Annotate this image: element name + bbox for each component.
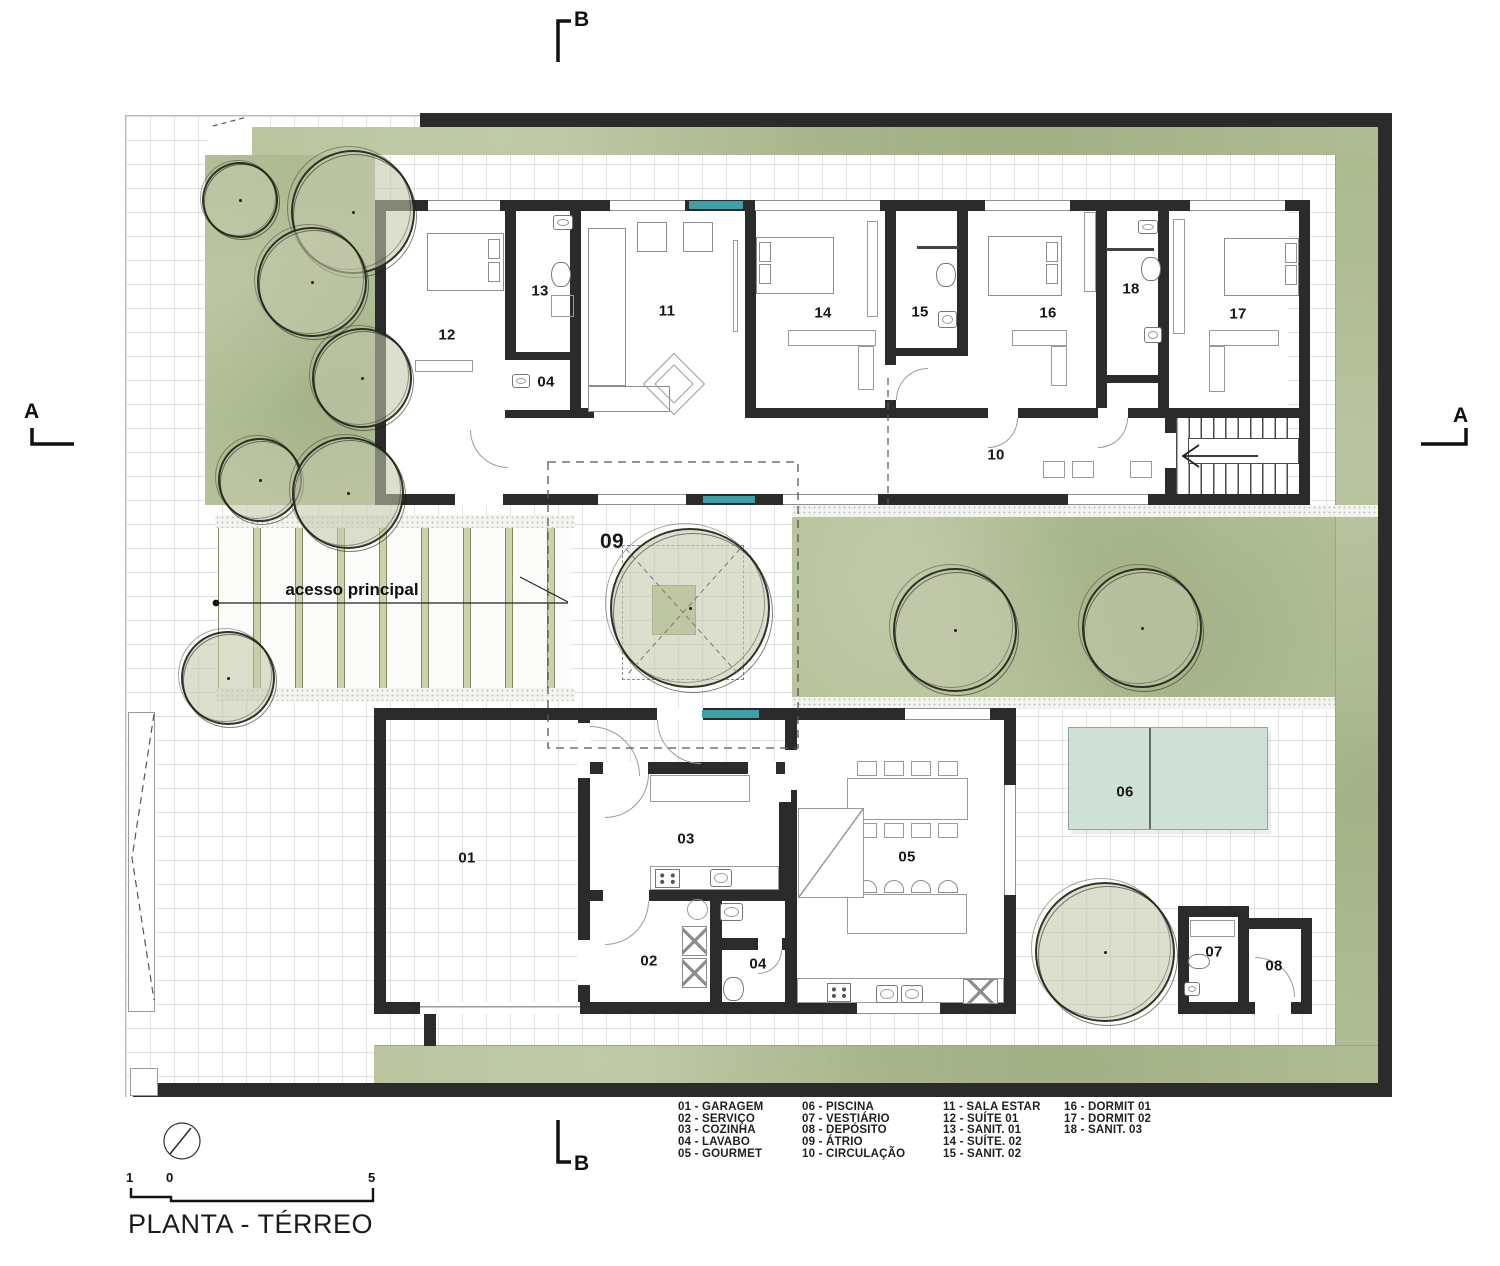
wall bbox=[505, 200, 516, 360]
chair bbox=[938, 761, 958, 776]
door-opening bbox=[758, 938, 782, 950]
wall bbox=[1178, 1002, 1249, 1014]
section-label-a-left: A bbox=[24, 400, 39, 424]
door-opening bbox=[885, 365, 896, 400]
pool bbox=[1068, 727, 1268, 830]
pillow bbox=[759, 264, 771, 284]
wall bbox=[1158, 200, 1169, 408]
desk bbox=[858, 346, 874, 390]
legend-item: 11 - SALA ESTAR bbox=[943, 1102, 1041, 1114]
shower-bench bbox=[1190, 920, 1235, 937]
pillow bbox=[759, 242, 771, 262]
desk bbox=[1051, 346, 1067, 386]
wall bbox=[745, 408, 1310, 418]
access-label: acesso principal bbox=[285, 580, 418, 600]
shower-shelf bbox=[1106, 248, 1154, 251]
window bbox=[755, 200, 880, 211]
room-label-sanit-02: 15 bbox=[911, 304, 928, 321]
sink bbox=[553, 215, 573, 230]
sink bbox=[876, 985, 898, 1003]
tree-icon bbox=[312, 328, 412, 428]
room-label-sanit-03: 18 bbox=[1122, 281, 1139, 298]
desk bbox=[1209, 330, 1279, 346]
vanity bbox=[551, 295, 574, 317]
sink bbox=[1144, 327, 1162, 343]
sink bbox=[512, 374, 530, 388]
window-accent bbox=[689, 201, 743, 209]
grass-right-strip bbox=[1335, 155, 1378, 1083]
wardrobe bbox=[1084, 212, 1096, 292]
stool bbox=[938, 880, 958, 893]
section-label-a-right: A bbox=[1453, 404, 1468, 428]
room-label-deposito: 08 bbox=[1265, 958, 1282, 975]
stool bbox=[884, 880, 904, 893]
chair bbox=[938, 823, 958, 838]
site-wall-right bbox=[1378, 115, 1392, 1097]
toilet bbox=[551, 262, 571, 287]
pillow bbox=[1046, 264, 1058, 284]
window bbox=[1068, 494, 1148, 505]
wall bbox=[957, 200, 968, 356]
window bbox=[598, 494, 686, 505]
wardrobe bbox=[867, 221, 878, 317]
legend-item: 05 - GOURMET bbox=[678, 1149, 763, 1161]
tv-panel bbox=[733, 240, 738, 332]
console-table bbox=[1043, 461, 1065, 478]
tree-icon bbox=[202, 162, 278, 238]
console-table bbox=[1072, 461, 1094, 478]
tree-icon bbox=[181, 631, 275, 725]
floor-plan-canvas: 01 02 03 04 04 05 06 07 08 09 10 11 12 1… bbox=[0, 0, 1500, 1266]
chair bbox=[884, 823, 904, 838]
window bbox=[428, 200, 500, 211]
utility-box bbox=[130, 1068, 158, 1096]
tree-icon bbox=[292, 437, 404, 549]
desk bbox=[1209, 346, 1225, 392]
section-label-b-top: B bbox=[574, 8, 589, 32]
door-opening bbox=[988, 408, 1018, 418]
legend-column-2: 06 - PISCINA 07 - VESTIÁRIO 08 - DEPÓSIT… bbox=[802, 1102, 905, 1161]
stove bbox=[827, 983, 851, 1002]
desk bbox=[1012, 330, 1067, 346]
window bbox=[610, 200, 685, 211]
pillow bbox=[1285, 265, 1297, 285]
wall bbox=[885, 348, 968, 356]
window bbox=[783, 494, 878, 505]
legend-item: 15 - SANIT. 02 bbox=[943, 1149, 1041, 1161]
pillow bbox=[488, 262, 500, 282]
sink bbox=[710, 869, 732, 887]
wall bbox=[1165, 408, 1176, 433]
sink bbox=[901, 985, 923, 1003]
tree-icon bbox=[257, 227, 367, 337]
shower-shelf bbox=[917, 246, 959, 249]
window bbox=[985, 200, 1070, 211]
scale-number-1: 1 bbox=[126, 1170, 133, 1185]
window-accent bbox=[702, 710, 759, 718]
wall bbox=[1299, 200, 1310, 505]
door-opening bbox=[578, 940, 590, 985]
legend-column-3: 11 - SALA ESTAR 12 - SUÍTE 01 13 - SANIT… bbox=[943, 1102, 1041, 1161]
water-heater bbox=[687, 899, 708, 920]
driveway-gate bbox=[128, 712, 155, 1012]
room-label-cozinha: 03 bbox=[677, 831, 694, 848]
scale-number-0: 0 bbox=[166, 1170, 173, 1185]
desk bbox=[415, 360, 473, 372]
wall bbox=[1165, 468, 1176, 505]
room-label-gourmet: 05 bbox=[898, 849, 915, 866]
legend-item: 10 - CIRCULAÇÃO bbox=[802, 1149, 905, 1161]
door-opening bbox=[455, 494, 503, 505]
room-label-servico: 02 bbox=[640, 953, 657, 970]
chair bbox=[884, 761, 904, 776]
wall bbox=[1301, 918, 1312, 1014]
legend-column-1: 01 - GARAGEM 02 - SERVIÇO 03 - COZINHA 0… bbox=[678, 1102, 763, 1161]
window-accent bbox=[703, 496, 755, 503]
armchair bbox=[637, 222, 667, 252]
chair bbox=[911, 761, 931, 776]
pedestrian-gate bbox=[208, 117, 252, 155]
wall bbox=[1238, 906, 1249, 1014]
sink bbox=[720, 903, 743, 921]
washer bbox=[682, 926, 707, 956]
room-label-lavabo-upper: 04 bbox=[537, 374, 554, 391]
dining-table bbox=[847, 778, 968, 820]
wall bbox=[374, 708, 386, 1014]
door-opening bbox=[1255, 1002, 1291, 1014]
legend-item: 06 - PISCINA bbox=[802, 1102, 905, 1114]
pebble-band bbox=[792, 505, 1378, 517]
grass-top-strip bbox=[252, 127, 1378, 155]
wall bbox=[745, 200, 756, 418]
toilet bbox=[936, 263, 956, 287]
room-label-garagem: 01 bbox=[458, 850, 475, 867]
door-opening bbox=[657, 708, 703, 720]
armchair bbox=[683, 222, 713, 252]
room-label-piscina: 06 bbox=[1116, 784, 1133, 801]
grass-bottom-strip bbox=[374, 1045, 1378, 1083]
sideboard bbox=[798, 808, 864, 898]
wall bbox=[424, 1014, 436, 1046]
door-opening bbox=[748, 762, 776, 774]
dryer bbox=[682, 958, 707, 988]
stove bbox=[655, 869, 680, 888]
tree-icon bbox=[893, 568, 1017, 692]
stair-landing bbox=[1188, 438, 1299, 464]
sofa bbox=[588, 228, 626, 386]
console-table bbox=[1130, 461, 1152, 478]
page-title: PLANTA - TÉRREO bbox=[128, 1209, 373, 1240]
legend-item: 01 - GARAGEM bbox=[678, 1102, 763, 1114]
room-label-sanit-01: 13 bbox=[531, 283, 548, 300]
room-label-dormit-01: 16 bbox=[1039, 305, 1056, 322]
window bbox=[1004, 785, 1016, 895]
tree-icon bbox=[610, 528, 770, 688]
grass-middle-garden bbox=[792, 517, 1335, 697]
kitchen-cabinet bbox=[650, 775, 750, 802]
window bbox=[1190, 200, 1285, 211]
site-wall-top bbox=[420, 113, 1392, 127]
wardrobe bbox=[1173, 219, 1185, 334]
toilet bbox=[1141, 257, 1161, 281]
chair bbox=[857, 761, 877, 776]
room-label-suite-02: 14 bbox=[814, 305, 831, 322]
room-label-atrio: 09 bbox=[600, 530, 624, 554]
scale-number-5: 5 bbox=[368, 1170, 375, 1185]
room-label-circulacao: 10 bbox=[987, 447, 1004, 464]
door-opening bbox=[785, 750, 797, 790]
sink bbox=[1138, 220, 1158, 234]
section-label-b-bottom: B bbox=[574, 1152, 589, 1176]
stool bbox=[911, 880, 931, 893]
pillow bbox=[1046, 242, 1058, 262]
door-opening bbox=[603, 890, 649, 901]
wall bbox=[505, 352, 580, 360]
door-opening bbox=[578, 723, 590, 778]
garage-door bbox=[420, 1002, 580, 1014]
pillow bbox=[488, 239, 500, 259]
tree-icon bbox=[1082, 568, 1202, 688]
door-opening bbox=[1098, 408, 1128, 418]
window bbox=[905, 708, 990, 720]
room-label-lavabo-lower: 04 bbox=[749, 956, 766, 973]
site-wall-bottom bbox=[133, 1083, 1392, 1097]
corner-sink bbox=[963, 979, 998, 1004]
legend-item: 18 - SANIT. 03 bbox=[1064, 1125, 1151, 1137]
toilet bbox=[723, 977, 744, 1001]
window bbox=[857, 1002, 940, 1014]
room-label-sala-estar: 11 bbox=[659, 303, 675, 320]
legend-item: 16 - DORMIT 01 bbox=[1064, 1102, 1151, 1114]
pillow bbox=[1285, 243, 1297, 263]
shower-icon bbox=[1184, 982, 1200, 996]
legend-column-4: 16 - DORMIT 01 17 - DORMIT 02 18 - SANIT… bbox=[1064, 1102, 1151, 1137]
bar-counter bbox=[847, 894, 967, 934]
tree-icon bbox=[1035, 882, 1175, 1022]
desk bbox=[788, 330, 876, 346]
room-label-suite-01: 12 bbox=[438, 327, 455, 344]
sink bbox=[938, 311, 957, 328]
room-label-vestiario: 07 bbox=[1205, 944, 1222, 961]
wall bbox=[505, 410, 580, 418]
room-label-dormit-02: 17 bbox=[1229, 306, 1246, 323]
chair bbox=[911, 823, 931, 838]
